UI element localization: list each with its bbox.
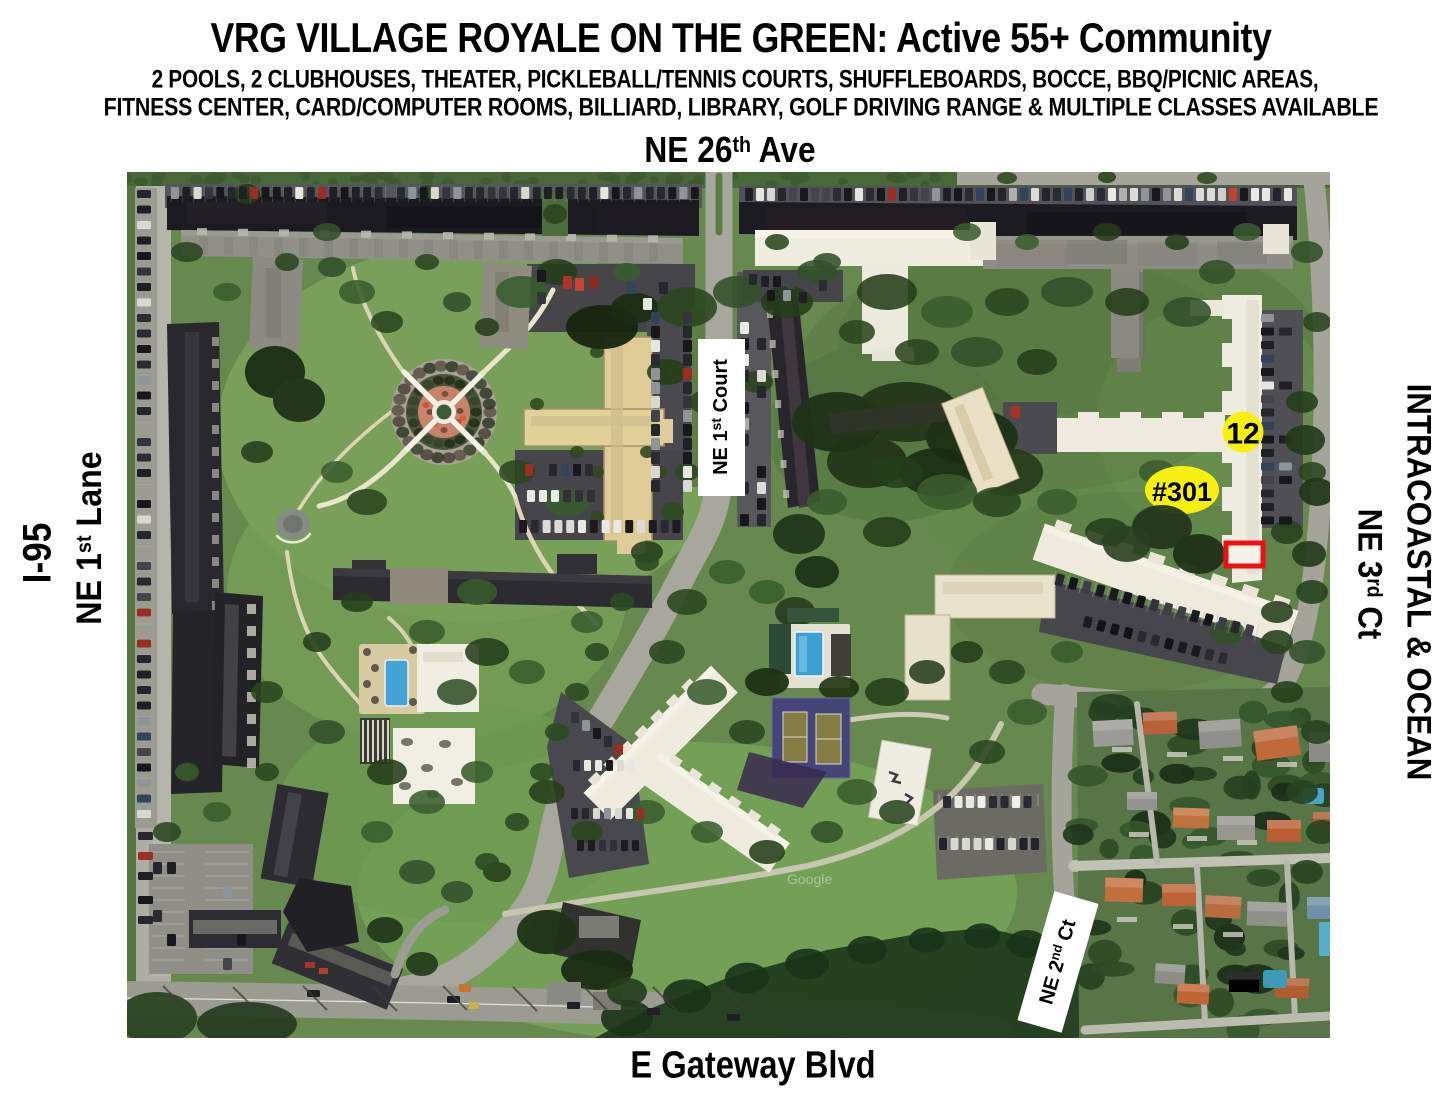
svg-text:12: 12 xyxy=(1226,418,1259,451)
svg-text:#301: #301 xyxy=(1152,477,1212,507)
svg-text:NE 1st Court: NE 1st Court xyxy=(708,359,732,475)
svg-text:Google: Google xyxy=(787,871,832,887)
